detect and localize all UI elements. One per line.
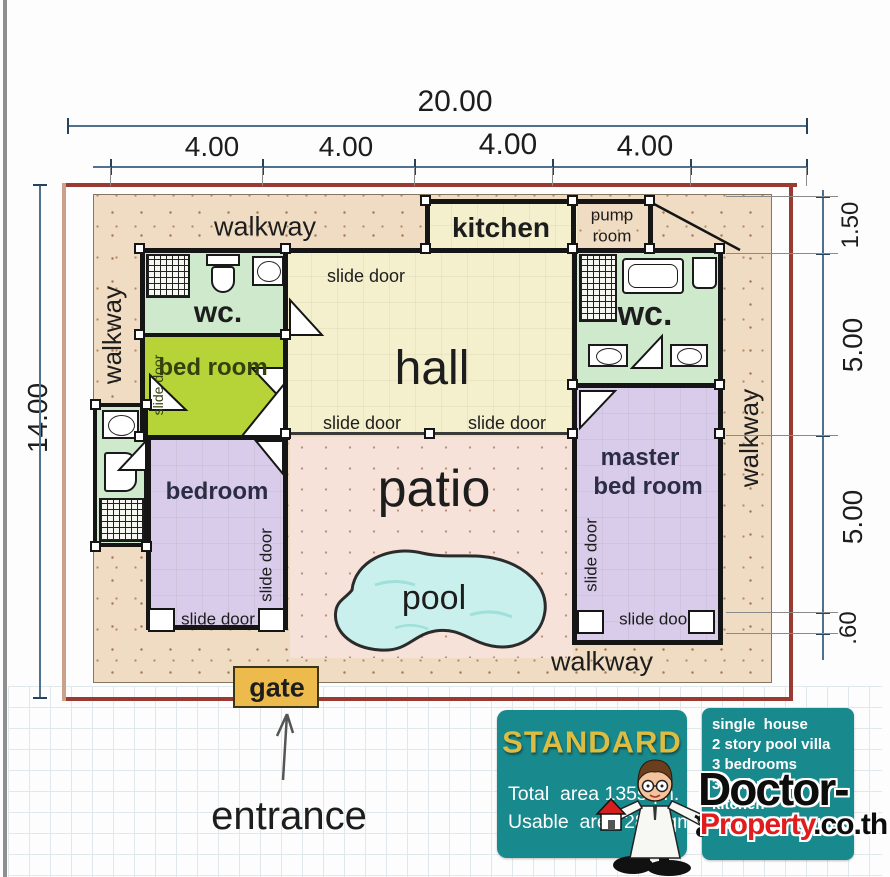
dim-extension [806, 167, 807, 186]
brand-tld-text: .co.th [813, 808, 887, 841]
dim-tick [33, 184, 47, 186]
pillar-post [148, 608, 175, 632]
pillar-post [688, 610, 715, 634]
dim-top-segment-4: 4.00 [617, 133, 673, 162]
walkway-label-top: walkway [214, 214, 316, 241]
wall [283, 248, 288, 438]
gate-label: gate [249, 675, 305, 702]
dim-top-segment-1: 4.00 [185, 133, 240, 161]
wall-post [420, 195, 431, 206]
wall [572, 640, 723, 645]
dim-tick [67, 118, 69, 134]
dim-line-right [822, 190, 824, 660]
brand-name-primary: Doctor- [698, 766, 848, 812]
slide-door-label: slide door [327, 267, 405, 285]
pump-room-label-1: pump [591, 207, 634, 224]
dim-extension [726, 633, 838, 634]
wall [140, 435, 290, 440]
bedroom-label: bedroom [166, 480, 269, 504]
wall [718, 248, 723, 388]
wall-post [644, 195, 655, 206]
walkway-label-bottom: walkway [551, 649, 653, 676]
brand-property-text: Property [700, 808, 813, 841]
toilet-left-wc [206, 254, 240, 266]
house-icon [597, 799, 625, 830]
dim-right-segment-3: 5.00 [839, 490, 867, 545]
wall [140, 248, 723, 253]
sink-basin-small-wc [108, 415, 135, 436]
wall-post [714, 428, 725, 439]
site-boundary-bottom [62, 697, 793, 701]
wall [425, 199, 655, 204]
slide-door-label: slide door [619, 611, 693, 628]
wall-post [90, 541, 101, 552]
floor-plan-image: 20.00 4.00 4.00 4.00 4.00 14.00 1.50 5.0… [0, 0, 890, 877]
wall-post [90, 399, 101, 410]
brand-name-secondary: Property.co.th [700, 810, 887, 840]
dim-top-segment-3: 4.00 [479, 130, 537, 160]
sink-basin-left-wc [257, 261, 281, 282]
dim-extension [690, 167, 691, 186]
wall [140, 333, 288, 337]
entrance-label: entrance [211, 796, 367, 836]
wall-post [567, 379, 578, 390]
wall-post [141, 399, 152, 410]
dim-extension [726, 196, 838, 197]
shower-small-wc [99, 498, 144, 542]
wc-right-label: wc. [618, 297, 673, 331]
wall-post [424, 428, 435, 439]
wall [140, 248, 145, 440]
dim-line-top-segments [93, 166, 806, 168]
pool-label: pool [402, 581, 466, 615]
wall-post [280, 329, 291, 340]
wall-post [134, 431, 145, 442]
bin-right-wc [692, 257, 717, 289]
wall [146, 437, 151, 630]
wc-left-label: wc. [194, 298, 242, 328]
wall-post [567, 428, 578, 439]
wall-post [567, 243, 578, 254]
wall [283, 437, 288, 630]
wall-post [567, 195, 578, 206]
toilet-small-wc [104, 452, 137, 492]
sink1-basin [596, 348, 622, 365]
dim-right-segment-4: .60 [837, 611, 861, 644]
dim-extension [726, 612, 838, 613]
dim-extension [414, 167, 415, 186]
dim-right-segment-1: 1.50 [839, 202, 863, 249]
wall [572, 383, 723, 388]
walkway-label-left: walkway [99, 286, 125, 384]
site-boundary-left [62, 183, 66, 701]
hall-label: hall [395, 345, 470, 393]
bathtub-inner [628, 264, 678, 288]
slide-door-label: slide door [151, 355, 165, 416]
wall-post [644, 243, 655, 254]
master-bedroom-label-2: bed room [593, 475, 702, 499]
dim-extension [726, 253, 838, 254]
slide-door-label: slide door [468, 414, 546, 432]
slide-door-label: slide door [323, 414, 401, 432]
wall-post [280, 243, 291, 254]
pillar-post [258, 608, 285, 632]
dim-extension [552, 167, 553, 186]
bed-room-lime-label: bed room [158, 356, 267, 380]
dim-extension [262, 167, 263, 186]
wall-post [141, 541, 152, 552]
feature-item: single house [712, 716, 808, 733]
pillar-post [577, 610, 604, 634]
page-left-edge [3, 0, 7, 877]
dim-left-height: 14.00 [24, 383, 52, 453]
wall [572, 383, 577, 645]
dim-line-left [39, 184, 41, 698]
wall-post [280, 428, 291, 439]
dim-tick [806, 118, 808, 134]
dim-tick [33, 697, 47, 699]
room-master-bedroom [576, 387, 720, 642]
wall [718, 383, 723, 645]
dim-top-segment-2: 4.00 [319, 133, 374, 161]
dim-extension [110, 167, 111, 186]
feature-item: 2 story pool villa [712, 736, 830, 753]
patio-label: patio [378, 463, 491, 515]
shower-left-wc [146, 254, 190, 298]
wall-post [714, 243, 725, 254]
toilet-bowl-left-wc [211, 266, 235, 293]
wall-post [134, 243, 145, 254]
walkway-label-right: walkway [736, 389, 762, 487]
wall-post [714, 379, 725, 390]
wall-post [134, 329, 145, 340]
site-boundary-top [62, 183, 797, 187]
pump-room-label-2: room [593, 228, 632, 245]
wall-post [420, 243, 431, 254]
dim-top-total: 20.00 [417, 87, 492, 117]
kitchen-label: kitchen [452, 214, 550, 242]
site-boundary-right [789, 183, 793, 701]
sink2-basin [677, 348, 702, 365]
dim-line-top-total [67, 125, 806, 127]
dim-right-segment-2: 5.00 [839, 318, 867, 373]
dim-extension [726, 435, 838, 436]
master-bedroom-label-1: master [601, 446, 680, 470]
shower-right-wc [579, 254, 617, 322]
slide-door-label: slide door [258, 528, 275, 602]
slide-door-label: slide door [583, 518, 600, 592]
